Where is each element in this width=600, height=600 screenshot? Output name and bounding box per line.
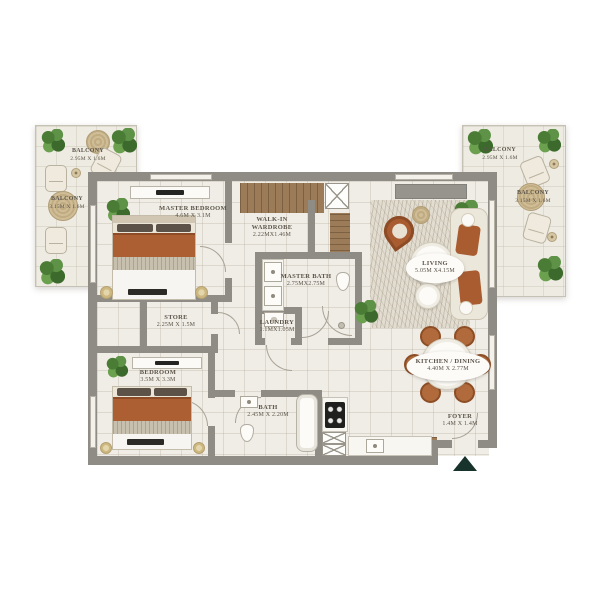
balcony-dims: 2.95M X 1.6M xyxy=(482,154,517,161)
room-label-store: STORE 2.25M X 1.5M xyxy=(157,314,195,330)
room-dims: 2.45M X 2.20M xyxy=(247,412,289,420)
plant-icon xyxy=(41,129,65,153)
wall xyxy=(208,426,215,456)
bed-sheet xyxy=(113,434,191,449)
balcony-label: BALCONY 3.15M X 1.6M xyxy=(515,190,550,204)
bed-blanket xyxy=(113,233,195,257)
bed-throw xyxy=(128,289,167,295)
balcony-name: BALCONY xyxy=(49,196,84,204)
room-dims: 4.6M X 3.1M xyxy=(159,213,227,221)
kitchen-counter xyxy=(348,436,432,456)
closet-wood-floor xyxy=(330,213,350,257)
room-name: MASTER BEDROOM xyxy=(159,205,227,213)
kitchen-sink-icon xyxy=(366,439,384,453)
balcony-door xyxy=(489,200,495,288)
coffee-table-icon xyxy=(415,283,441,309)
room-dims: 1.4M X 1.4M xyxy=(442,421,477,429)
tv-icon xyxy=(155,361,179,365)
plant-icon xyxy=(106,356,128,378)
plant-icon xyxy=(537,256,563,282)
bed-icon xyxy=(112,215,196,300)
shaft-icon xyxy=(325,183,349,209)
wall xyxy=(438,440,452,448)
shaft-icon xyxy=(322,432,346,444)
sink-icon xyxy=(264,262,282,282)
side-table-icon xyxy=(547,232,557,242)
bed-pillows xyxy=(113,223,195,233)
room-label-kitchen-dining: KITCHEN / DINING 4.40M X 2.77M xyxy=(407,351,490,381)
sofa-cushion xyxy=(457,270,482,306)
stool-icon xyxy=(195,286,208,299)
wall xyxy=(255,252,362,259)
tray-table-icon xyxy=(412,206,430,224)
room-name: WALK-IN WARDROBE xyxy=(244,216,300,232)
wall xyxy=(355,252,362,345)
room-label-master-bedroom: MASTER BEDROOM 4.6M X 3.1M xyxy=(159,205,227,221)
bed-throw xyxy=(127,439,164,445)
room-name: FOYER xyxy=(442,413,477,421)
room-name: BATH xyxy=(247,404,289,412)
room-dims: 4.40M X 2.77M xyxy=(416,366,481,374)
stove-icon xyxy=(325,402,345,428)
room-label-walk-in-wardrobe: WALK-IN WARDROBE 2.22MX1.46M xyxy=(244,216,300,240)
bed-quilt xyxy=(113,421,191,434)
lounge-chair-icon xyxy=(45,165,67,192)
wall xyxy=(478,440,497,448)
room-label-bedroom: BEDROOM 3.5M X 3.3M xyxy=(140,369,176,385)
room-name: LAUNDRY xyxy=(259,319,294,327)
wall xyxy=(308,200,315,252)
tv-icon xyxy=(156,190,184,195)
tv-console-icon xyxy=(395,184,467,199)
wall xyxy=(328,338,362,345)
sofa-pillow xyxy=(459,301,473,315)
room-dims: 2.25M X 1.5M xyxy=(157,322,195,330)
bathtub-icon xyxy=(296,394,318,452)
room-dims: 2.22MX1.46M xyxy=(244,232,300,240)
room-name: STORE xyxy=(157,314,195,322)
entrance-arrow-icon xyxy=(453,456,477,471)
window xyxy=(90,205,96,283)
plant-icon xyxy=(39,259,65,285)
wall xyxy=(97,346,218,353)
room-name: MASTER BATH xyxy=(281,273,332,281)
wall xyxy=(211,334,218,353)
side-table-icon xyxy=(71,168,81,178)
balcony-label: BALCONY 2.95M X 1.6M xyxy=(70,148,105,162)
room-dims: 5.05M X4.15M xyxy=(415,268,455,276)
balcony-name: BALCONY xyxy=(70,148,105,156)
stool-icon xyxy=(193,442,205,454)
window xyxy=(150,174,212,180)
wall xyxy=(215,390,235,397)
room-name: KITCHEN / DINING xyxy=(416,358,481,366)
balcony-label: BALCONY 3.15M X 1.6M xyxy=(49,196,84,210)
room-name: BEDROOM xyxy=(140,369,176,377)
room-label-laundry: LAUNDRY 1.1MX1.05M xyxy=(259,319,294,335)
room-dims: 2.75MX2.75M xyxy=(281,281,332,289)
bed-quilt xyxy=(113,257,195,270)
stool-icon xyxy=(100,442,112,454)
room-dims: 3.5M X 3.3M xyxy=(140,377,176,385)
room-dims: 1.1MX1.05M xyxy=(259,327,294,335)
wall xyxy=(140,302,147,346)
shower-drain-icon xyxy=(338,322,345,329)
side-table-icon xyxy=(549,159,559,169)
plant-icon xyxy=(537,129,561,153)
balcony-label: BALCONY 2.95M X 1.6M xyxy=(482,147,517,161)
sink-icon xyxy=(264,286,282,306)
shaft-icon xyxy=(322,444,346,456)
wall xyxy=(88,456,438,465)
bed-sheet xyxy=(113,270,195,299)
balcony-dims: 3.15M X 1.6M xyxy=(515,197,550,204)
stool-icon xyxy=(100,286,113,299)
wall xyxy=(255,338,265,345)
room-name: LIVING xyxy=(415,260,455,268)
balcony-dims: 3.15M X 1.6M xyxy=(49,203,84,210)
sofa-cushion xyxy=(455,224,481,257)
bed-icon xyxy=(112,386,192,450)
balcony-dims: 2.95M X 1.6M xyxy=(70,155,105,162)
window xyxy=(90,396,96,448)
bed-blanket xyxy=(113,397,191,421)
window xyxy=(395,174,453,180)
room-label-bath: BATH 2.45M X 2.20M xyxy=(247,404,289,420)
bed-pillows xyxy=(113,387,191,397)
lounge-chair-icon xyxy=(45,227,67,254)
room-label-foyer: FOYER 1.4M X 1.4M xyxy=(442,413,477,429)
sofa-pillow xyxy=(461,213,475,227)
floor-plan: BALCONY 2.95M X 1.6M BALCONY 3.15M X 1.6… xyxy=(0,0,600,600)
room-label-master-bath: MASTER BATH 2.75MX2.75M xyxy=(281,273,332,289)
plant-icon xyxy=(111,128,137,154)
plant-icon xyxy=(354,300,378,324)
balcony-name: BALCONY xyxy=(515,190,550,198)
wall xyxy=(295,307,302,345)
wall xyxy=(208,353,215,398)
balcony-name: BALCONY xyxy=(482,147,517,155)
room-label-living: LIVING 5.05M X4.15M xyxy=(406,253,464,283)
wall xyxy=(211,302,218,314)
